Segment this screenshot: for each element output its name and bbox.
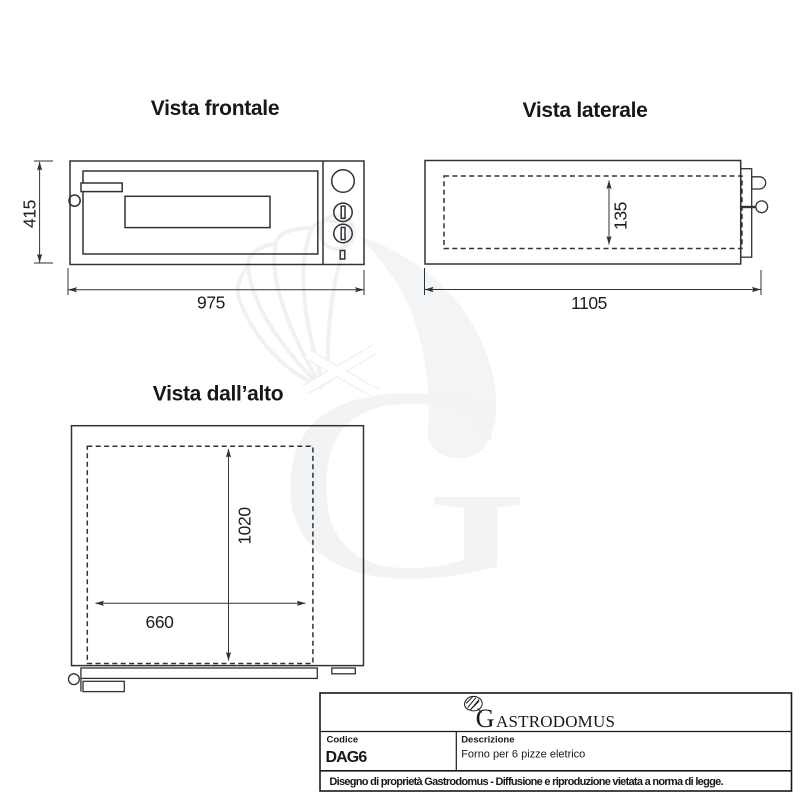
svg-text:Vista frontale: Vista frontale: [151, 97, 279, 120]
svg-text:G: G: [476, 704, 495, 733]
svg-text:415: 415: [20, 200, 40, 228]
svg-text:Codice: Codice: [327, 735, 359, 746]
svg-text:1020: 1020: [235, 507, 255, 545]
svg-text:135: 135: [611, 202, 631, 230]
svg-text:1105: 1105: [571, 293, 607, 313]
svg-text:Vista laterale: Vista laterale: [523, 99, 648, 122]
svg-text:Descrizione: Descrizione: [461, 735, 514, 746]
svg-text:Disegno di proprietà Gastrodom: Disegno di proprietà Gastrodomus - Diffu…: [329, 776, 723, 788]
svg-text:ASTRODOMUS: ASTRODOMUS: [496, 712, 615, 731]
svg-text:660: 660: [146, 612, 175, 632]
svg-text:Vista dall’alto: Vista dall’alto: [153, 383, 284, 406]
svg-text:Forno per 6 pizze eletrico: Forno per 6 pizze eletrico: [461, 749, 585, 761]
svg-text:DAG6: DAG6: [326, 749, 368, 766]
svg-text:975: 975: [197, 293, 225, 313]
svg-text:G: G: [276, 330, 531, 636]
